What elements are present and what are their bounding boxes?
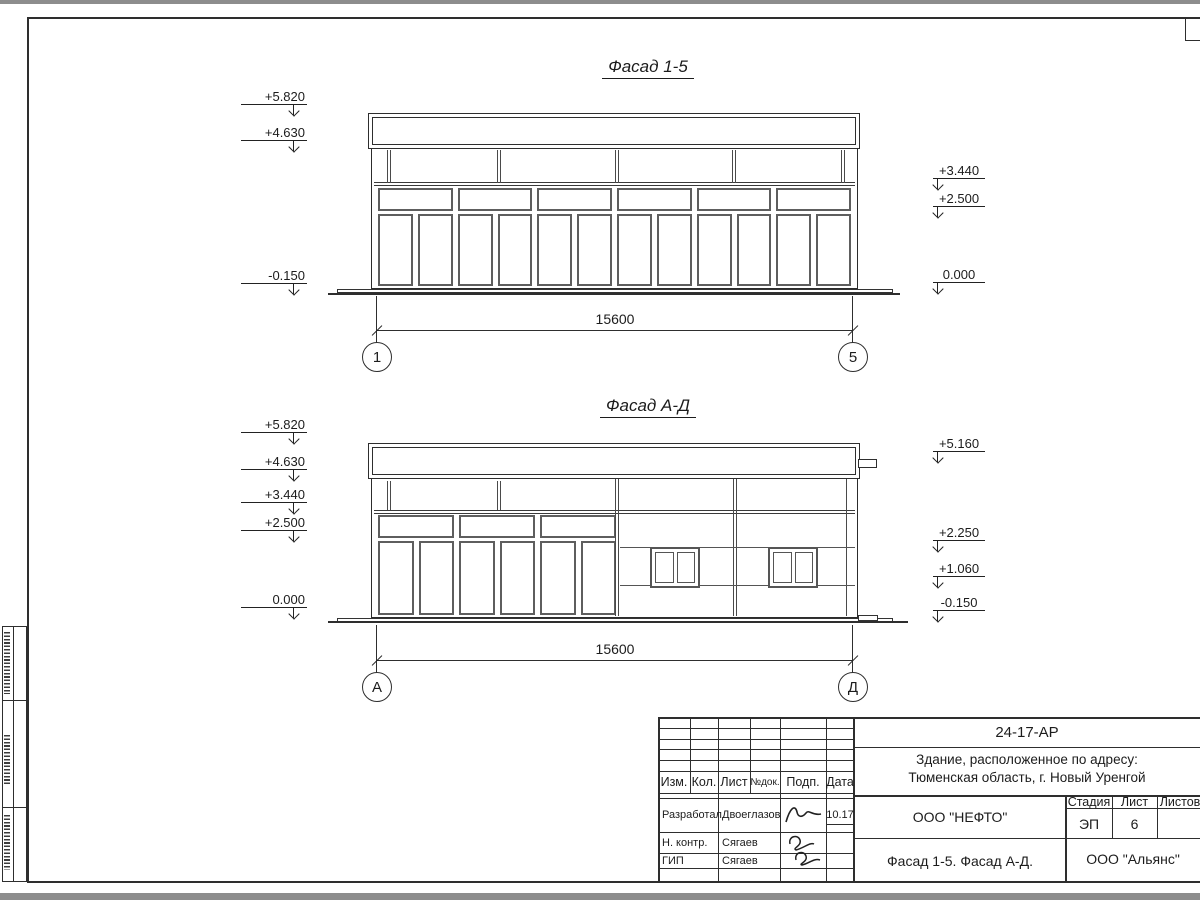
storefront-bay (459, 515, 535, 615)
tb-name: Сягаев (722, 853, 780, 868)
facade1-title: Фасад 1-5 (398, 57, 898, 77)
facade1-ground-line (328, 293, 900, 295)
mullion (615, 150, 619, 183)
elevation-mark: +3.440 (241, 487, 307, 503)
scan-edge-bottom (0, 893, 1200, 900)
frame-top (27, 17, 1200, 19)
facade1-dim-line (377, 330, 853, 331)
facade2-dim-line (377, 660, 853, 661)
tb-grid (658, 749, 854, 750)
tb-grid (718, 717, 719, 883)
elevation-arrow-icon (933, 452, 943, 465)
elevation-mark: +4.630 (241, 125, 307, 141)
signature (784, 832, 824, 868)
side-stamp-text (4, 815, 10, 870)
tb-grid (826, 717, 827, 883)
elevation-arrow-icon (933, 283, 943, 296)
elevation-arrow-icon (933, 611, 943, 624)
tb-list-label: Лист (1112, 795, 1157, 808)
elevation-mark: -0.150 (933, 595, 985, 611)
window (768, 547, 818, 588)
tb-col-list: Лист (718, 771, 750, 793)
storefront-bay (617, 188, 692, 286)
elevation-arrow-icon (289, 531, 299, 544)
mullion (841, 150, 845, 183)
tb-role: Н. контр. (662, 832, 718, 853)
tb-listov-label: Листов (1157, 795, 1200, 808)
facade2-signband (368, 443, 860, 479)
elevation-mark: +2.250 (933, 525, 985, 541)
scan-edge-top (0, 0, 1200, 4)
tb-col-data: Дата (826, 771, 854, 793)
elevation-mark: +3.440 (933, 163, 985, 179)
tb-col-izm: Изм. (658, 771, 690, 793)
tb-name: Сягаев (722, 832, 780, 853)
frame-notch-h (1185, 40, 1200, 41)
mullion (387, 150, 391, 183)
tb-date: 10.17 (826, 806, 854, 824)
tb-border (658, 717, 660, 883)
tb-drawing-title: Фасад 1-5. Фасад А-Д. (854, 839, 1066, 883)
tb-grid (854, 747, 1200, 748)
elevation-arrow-icon (289, 433, 299, 446)
mullion (732, 150, 736, 183)
window (650, 547, 700, 588)
signature (782, 800, 824, 828)
storefront-bay (697, 188, 772, 286)
drawing-sheet: Фасад 1-5 +5.820 +4.630 -0.150 +3.440 +2… (0, 0, 1200, 900)
side-stamp-text (4, 735, 10, 785)
tb-name: Двоеглазов (722, 799, 780, 831)
elevation-arrow-icon (933, 577, 943, 590)
tb-grid (658, 760, 854, 761)
elevation-mark: +1.060 (933, 561, 985, 577)
storefront-bay (537, 188, 612, 286)
storefront-bay (378, 515, 454, 615)
facade1-signband (368, 113, 860, 149)
tb-grid (658, 728, 854, 729)
storefront-bay (378, 188, 453, 286)
axis-bubble: 5 (838, 342, 868, 372)
elevation-mark: +5.820 (241, 89, 307, 105)
tb-list-value: 6 (1112, 809, 1157, 838)
tb-col-kol: Кол. (690, 771, 718, 793)
elevation-mark: -0.150 (241, 268, 307, 284)
tb-stage-label: Стадия (1066, 795, 1112, 808)
facade2-storefront (378, 515, 616, 615)
tb-role: ГИП (662, 853, 718, 868)
facade2-dimension: 15600 (377, 641, 853, 657)
elevation-mark: +5.820 (241, 417, 307, 433)
frame-notch-v (1185, 17, 1186, 41)
tb-designer: ООО "НЕФТО" (854, 796, 1066, 838)
storefront-bay (540, 515, 616, 615)
elevation-mark: +4.630 (241, 454, 307, 470)
facade1-dimension: 15600 (377, 311, 853, 327)
tb-doc-number: 24-17-АР (854, 717, 1200, 747)
elevation-arrow-icon (933, 541, 943, 554)
side-stamp-text (4, 632, 10, 694)
facade2-ground-line (328, 621, 908, 623)
elevation-mark: 0.000 (933, 267, 985, 283)
elevation-mark: +2.500 (933, 191, 985, 207)
tb-grid (780, 717, 781, 883)
storefront-bay (776, 188, 851, 286)
elevation-arrow-icon (289, 141, 299, 154)
facade2-title: Фасад А-Д (398, 396, 898, 416)
elevation-arrow-icon (289, 608, 299, 621)
tb-grid (658, 868, 854, 869)
elevation-arrow-icon (289, 284, 299, 297)
mullion (497, 150, 501, 183)
tb-address: Здание, расположенное по адресу: Тюменск… (854, 751, 1200, 787)
elevation-arrow-icon (933, 207, 943, 220)
tb-stage-value: ЭП (1066, 809, 1112, 838)
mullion (497, 481, 501, 510)
tb-col-podp: Подп. (780, 771, 826, 793)
axis-bubble: 1 (362, 342, 392, 372)
axis-bubble: Д (838, 672, 868, 702)
elevation-arrow-icon (289, 470, 299, 483)
tb-grid (658, 739, 854, 740)
mullion (387, 481, 391, 510)
elevation-mark: 0.000 (241, 592, 307, 608)
elevation-mark: +5.160 (933, 436, 985, 452)
tb-col-ndok: №док. (750, 771, 780, 793)
tb-grid (658, 793, 854, 794)
tb-grid (827, 824, 853, 825)
tb-contractor: ООО "Альянс" (1066, 839, 1200, 879)
elevation-mark: +2.500 (241, 515, 307, 531)
facade1-storefront (378, 188, 851, 286)
facade2-roof-bracket (858, 459, 877, 468)
frame-left (27, 17, 29, 883)
storefront-bay (458, 188, 533, 286)
tb-role: Разработал (662, 799, 718, 831)
elevation-arrow-icon (289, 105, 299, 118)
tb-listov-value (1157, 809, 1200, 838)
axis-bubble: А (362, 672, 392, 702)
wall-joint (615, 479, 619, 616)
